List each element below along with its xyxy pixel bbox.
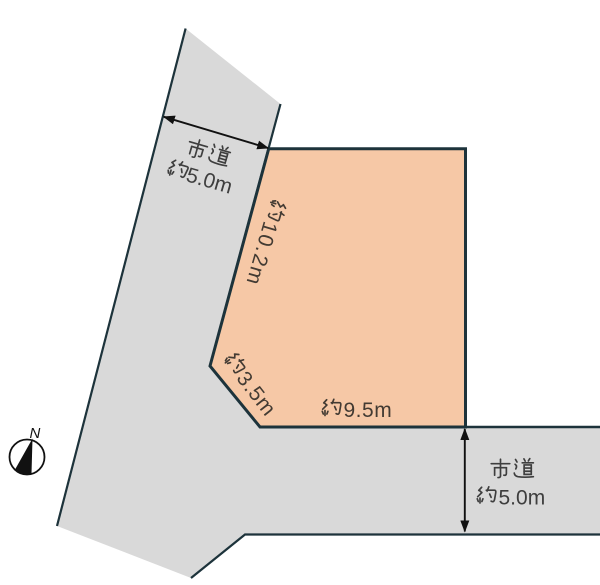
svg-text:5.0m: 5.0m bbox=[499, 487, 546, 510]
svg-text:9.5m: 9.5m bbox=[344, 399, 393, 422]
svg-text:N: N bbox=[30, 425, 41, 442]
